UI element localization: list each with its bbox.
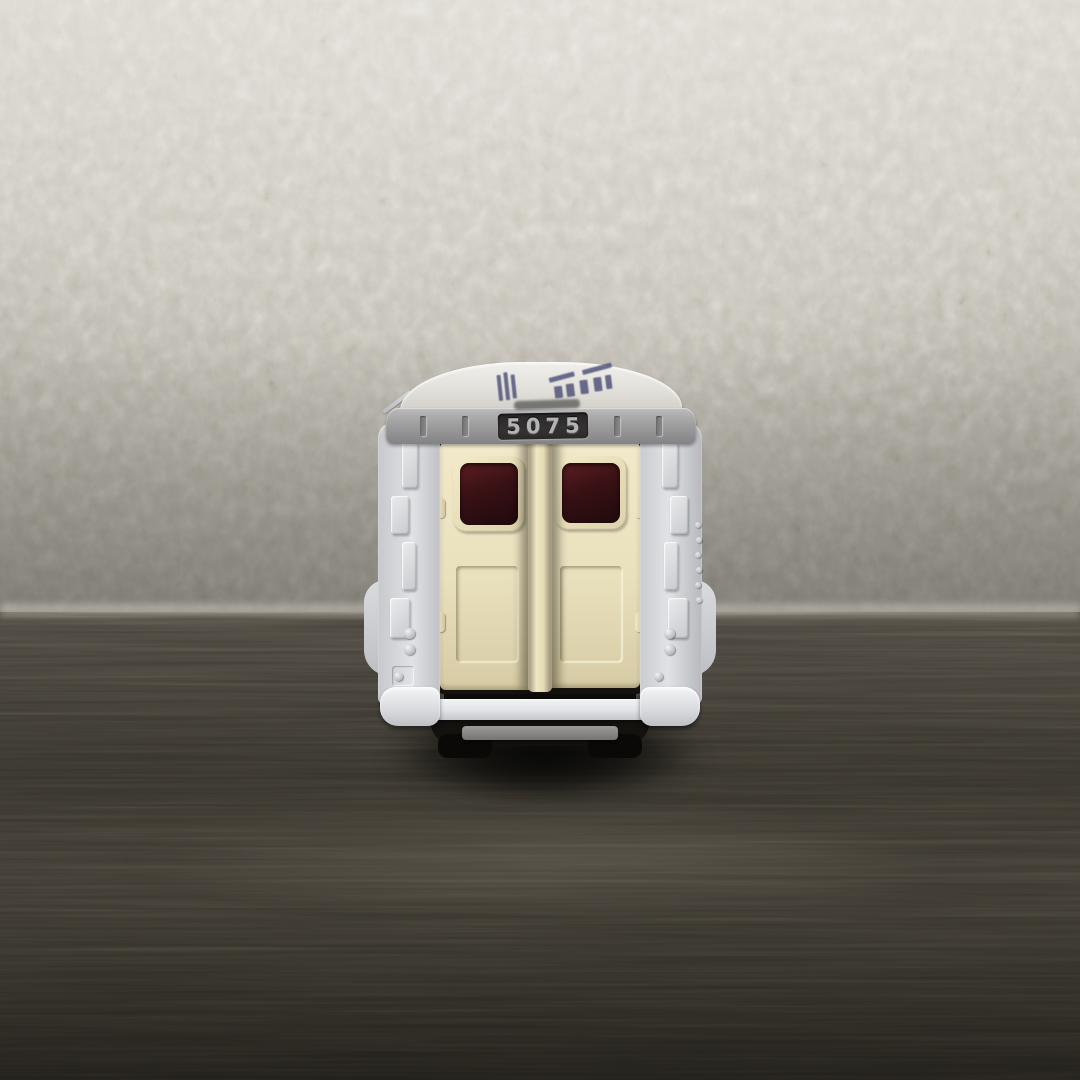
hinge-serration	[695, 522, 701, 528]
under-bumper-plate	[462, 726, 618, 740]
bumper-end-cap-right	[640, 687, 700, 726]
hinge-serration	[696, 537, 702, 543]
print-stroke	[605, 375, 613, 390]
casting-number-plate: 5075	[498, 412, 588, 440]
rear-door-left	[440, 442, 534, 690]
band-tick	[614, 416, 620, 436]
door-window-frame-right	[555, 456, 627, 530]
casting-number: 5075	[501, 413, 585, 438]
rivet	[404, 628, 415, 639]
toy-van-photograph: 5075	[0, 0, 1080, 1080]
door-lower-panel-right	[560, 566, 622, 662]
bumper-end-cap-left	[380, 687, 440, 726]
door-lower-panel-left	[456, 566, 518, 662]
door-window-glass-left	[460, 463, 518, 525]
hinge-serration	[696, 597, 702, 603]
print-stroke	[566, 383, 576, 397]
band-tick	[656, 416, 662, 436]
print-stroke	[511, 374, 517, 398]
door-window-glass-right	[562, 463, 620, 523]
roof-rail-band: 5075	[386, 408, 696, 444]
print-stroke	[554, 386, 563, 399]
toy-van: 5075	[376, 358, 704, 750]
pillar-molded-pad	[402, 442, 418, 488]
band-tick	[420, 416, 426, 436]
hinge-serration	[696, 567, 702, 573]
door-center-post	[528, 440, 552, 692]
print-stroke	[549, 371, 575, 383]
print-stroke	[496, 375, 503, 401]
print-stroke	[579, 380, 589, 395]
band-tick	[462, 416, 468, 436]
rear-bumper	[380, 684, 700, 726]
pillar-molded-pad	[662, 442, 678, 488]
rivet	[664, 644, 675, 655]
hinge-serration	[695, 552, 701, 558]
pillar-molded-pad	[402, 542, 416, 590]
pillar-molded-pad	[664, 542, 678, 590]
pillar-molded-pad	[670, 496, 688, 534]
rear-door-right	[546, 442, 640, 688]
print-stroke	[593, 377, 603, 392]
hinge-serration	[695, 582, 701, 588]
print-stroke	[503, 372, 510, 400]
rivet	[654, 672, 663, 681]
body-pillar-left	[378, 422, 440, 704]
door-window-frame-left	[453, 456, 525, 532]
print-stroke	[582, 362, 612, 375]
pillar-molded-pad	[391, 496, 409, 534]
rivet	[404, 644, 415, 655]
bumper-bar	[410, 699, 670, 720]
embossed-text-smudge	[514, 399, 580, 410]
rivet	[664, 628, 675, 639]
body-pillar-right	[640, 422, 702, 704]
pillar-bracket-detail	[392, 666, 414, 686]
